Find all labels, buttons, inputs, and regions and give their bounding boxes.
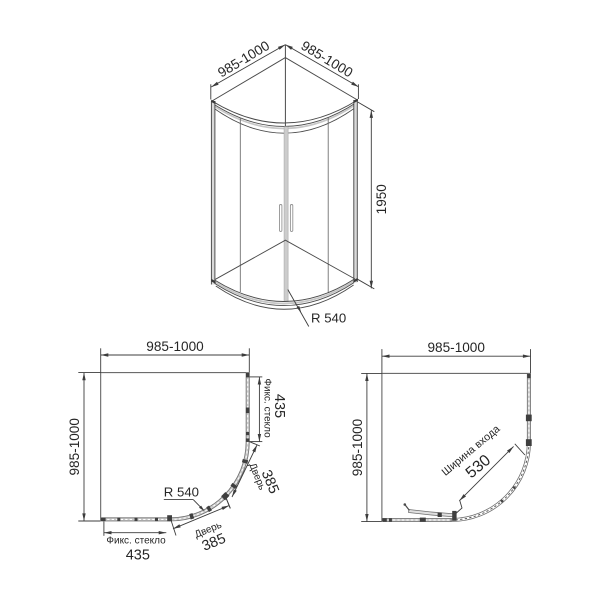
svg-text:435: 435 (271, 394, 287, 418)
svg-text:985-1000: 985-1000 (67, 418, 82, 476)
svg-text:985-1000: 985-1000 (146, 339, 204, 354)
svg-text:Фикс. стекло: Фикс. стекло (106, 536, 166, 547)
svg-text:985-1000: 985-1000 (350, 418, 365, 476)
svg-text:985-1000: 985-1000 (427, 340, 485, 355)
svg-text:Фикс. стекло: Фикс. стекло (261, 378, 272, 438)
svg-text:R 540: R 540 (311, 311, 346, 326)
svg-text:435: 435 (126, 548, 150, 564)
svg-text:1950: 1950 (374, 184, 389, 214)
svg-text:R 540: R 540 (164, 485, 199, 500)
